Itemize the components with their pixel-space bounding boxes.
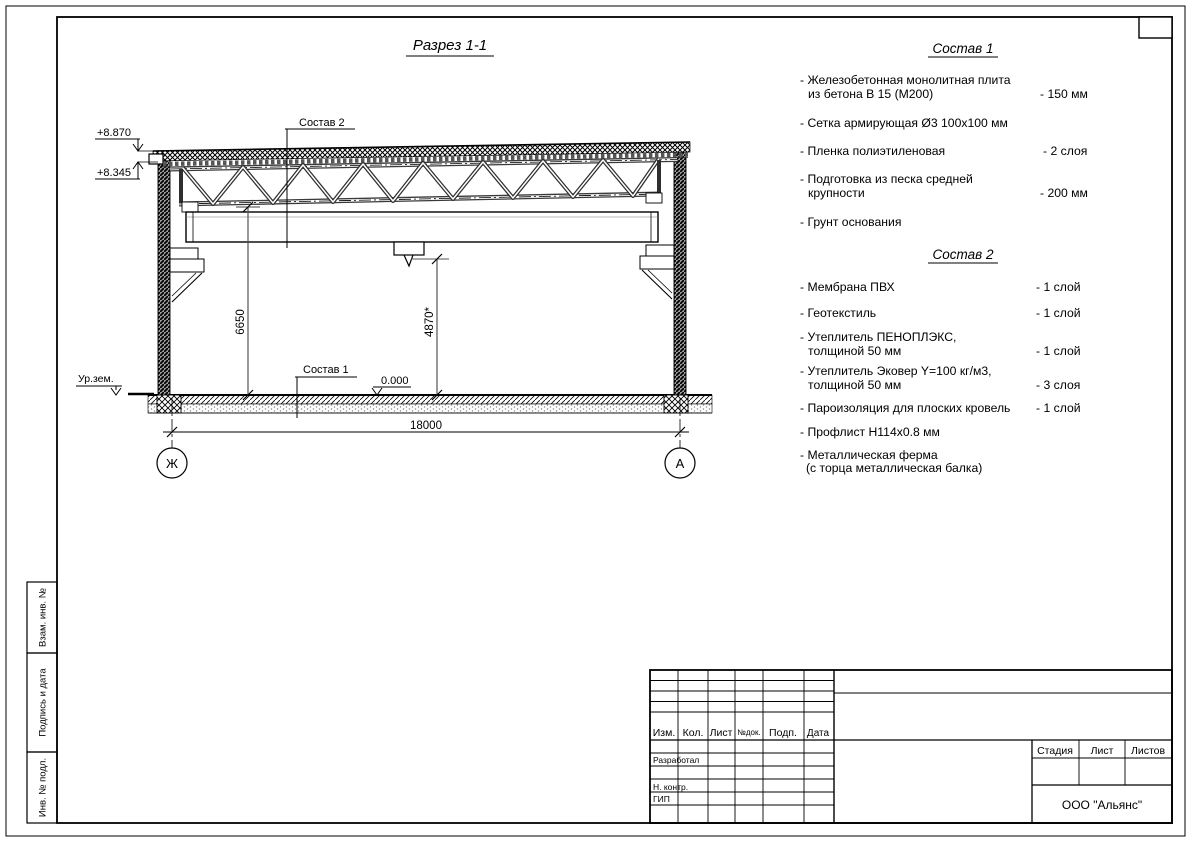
floor-layers: [128, 394, 712, 413]
sostav1-leader-text: Состав 1: [303, 364, 349, 376]
roof-left-end-block: [149, 154, 163, 164]
tb-col-podp: Подп.: [769, 727, 797, 739]
stamp-vzam-inv-label: Взам. инв. №: [38, 588, 49, 647]
dim-4870-text: 4870*: [424, 306, 436, 337]
axis-markers: Ж А: [157, 448, 695, 478]
tb-row-razrabotal: Разработал: [653, 755, 699, 765]
material-list-1-title: Состав 1: [933, 41, 994, 56]
drawing-sheet: Взам. инв. № Подпись и дата Инв. № подл.: [0, 0, 1191, 842]
tb-company: ООО "Альянс": [1062, 798, 1142, 812]
list-item: - Мембрана ПВХ: [800, 280, 895, 294]
tb-col-list: Лист: [710, 727, 733, 739]
ground-level-mark: Ур.зем.: [76, 373, 122, 395]
elevation-8870: +8.870: [95, 127, 162, 151]
list-item-value: - 2 слоя: [1043, 144, 1087, 158]
list-item-value: - 1 слой: [1036, 280, 1081, 294]
ground-level-text: Ур.зем.: [78, 373, 114, 385]
dim-18000-text: 18000: [410, 420, 442, 432]
axis-zh-label: Ж: [166, 456, 178, 471]
elev-8870-text: +8.870: [97, 127, 131, 139]
right-corbel: [640, 245, 674, 299]
zero-level-mark: 0.000: [372, 375, 411, 395]
list-item-value: - 1 слой: [1036, 344, 1081, 358]
list-item-value: - 3 слоя: [1036, 378, 1080, 392]
list-item: - Утеплитель Эковер Y=100 кг/м3,: [800, 364, 992, 378]
left-corbel: [170, 248, 204, 302]
tb-col-data: Дата: [807, 728, 830, 739]
list-item: толщиной 50 мм: [808, 378, 901, 392]
section-drawing-canvas: Взам. инв. № Подпись и дата Инв. № подл.: [0, 0, 1191, 842]
material-list-1: Состав 1 - Железобетонная монолитная пли…: [800, 41, 1088, 229]
list-item: - Утеплитель ПЕНОПЛЭКС,: [800, 330, 956, 344]
tb-sheet: Лист: [1091, 745, 1114, 757]
roof-truss: [170, 159, 677, 213]
list-item: - Подготовка из песка средней: [800, 172, 973, 186]
tb-stage: Стадия: [1037, 745, 1073, 757]
list-item-value: - 1 слой: [1036, 401, 1081, 415]
left-margin-stamps: Взам. инв. № Подпись и дата Инв. № подл.: [27, 582, 57, 823]
sheet-frame: [6, 6, 1185, 836]
list-item: - Пленка полиэтиленовая: [800, 144, 945, 158]
left-column: [158, 160, 170, 395]
hook-detail: [394, 242, 424, 266]
tb-col-izm: Изм.: [653, 727, 676, 739]
right-column: [674, 151, 686, 395]
list-item: - Пароизоляция для плоских кровель: [800, 401, 1010, 415]
tb-row-gip: ГИП: [653, 794, 670, 804]
list-item: - Металлическая ферма: [800, 448, 938, 462]
top-right-stamp-box: [1139, 17, 1172, 38]
dim-4870: 4870*: [411, 254, 449, 400]
material-list-2-title: Состав 2: [933, 247, 994, 262]
tb-sheets: Листов: [1131, 745, 1166, 757]
right-footing: [664, 395, 688, 413]
section-title: Разрез 1-1: [413, 37, 487, 54]
list-item: - Грунт основания: [800, 215, 901, 229]
sostav2-leader-text: Состав 2: [299, 117, 345, 129]
view-title: Разрез 1-1: [406, 37, 494, 56]
list-item: - Железобетонная монолитная плита: [800, 73, 1011, 87]
left-footing: [157, 395, 181, 413]
stamp-podpis-data-label: Подпись и дата: [38, 668, 49, 737]
tb-col-kol: Кол.: [683, 727, 704, 739]
title-block: Изм. Кол. Лист №док. Подп. Дата Разработ…: [650, 670, 1172, 823]
zero-level-text: 0.000: [381, 375, 409, 387]
elev-8345-text: +8.345: [97, 167, 131, 179]
list-item: - Сетка армирующая Ø3 100х100 мм: [800, 116, 1008, 130]
section-view: 6650 4870* 18000 Ж А +8.870: [76, 37, 712, 478]
runway-beam: [186, 212, 658, 242]
tb-col-ndok: №док.: [737, 728, 760, 737]
list-item-value: - 200 мм: [1040, 186, 1088, 200]
stamp-inv-podl-label: Инв. № подл.: [38, 758, 49, 817]
list-item: из бетона В 15 (М200): [808, 87, 933, 101]
list-item: (с торца металлическая балка): [806, 461, 982, 475]
list-item: - Геотекстиль: [800, 306, 876, 320]
axis-a-label: А: [676, 456, 685, 471]
list-item: крупности: [808, 186, 865, 200]
material-list-2: Состав 2 - Мембрана ПВХ - 1 слой - Геоте…: [800, 247, 1081, 475]
tb-row-nkontr: Н. контр.: [653, 782, 688, 792]
list-item-value: - 1 слой: [1036, 306, 1081, 320]
list-item: - Профлист Н114х0.8 мм: [800, 425, 940, 439]
list-item: толщиной 50 мм: [808, 344, 901, 358]
dim-6650-text: 6650: [235, 309, 247, 335]
list-item-value: - 150 мм: [1040, 87, 1088, 101]
